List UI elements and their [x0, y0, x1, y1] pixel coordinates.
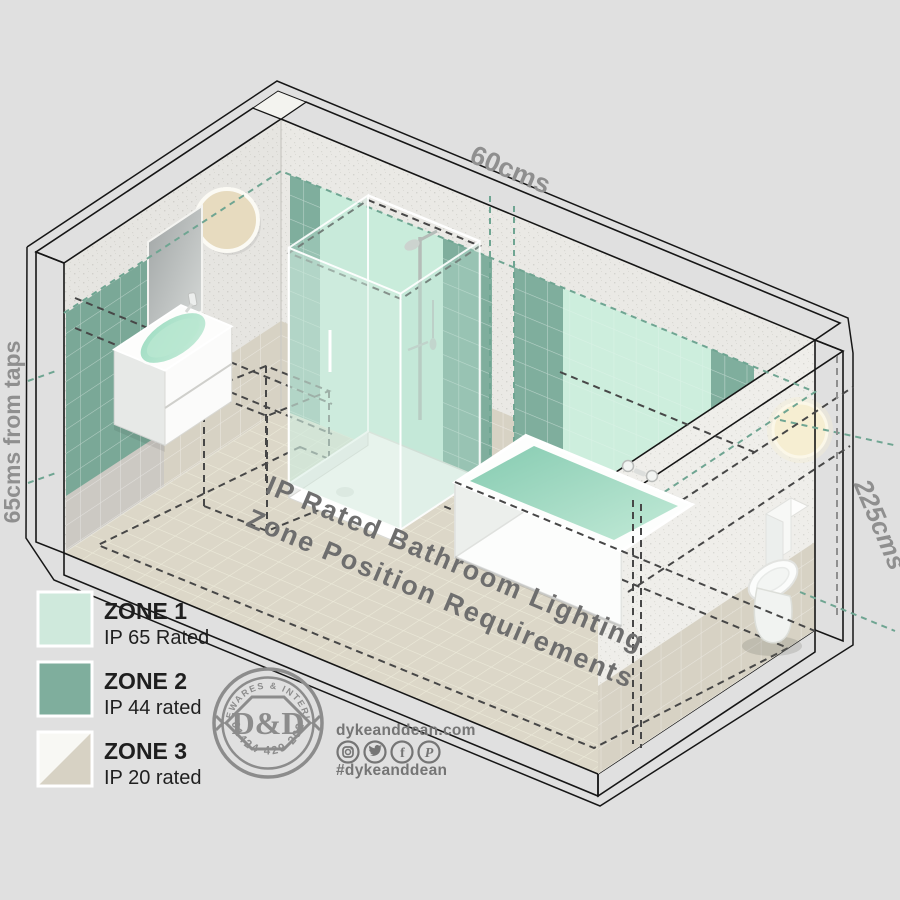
- measure-65cms: 65cms from taps: [0, 341, 25, 524]
- legend-item-zone1: ZONE 1 IP 65 Rated: [38, 592, 209, 649]
- legend-item-zone3: ZONE 3 IP 20 rated: [38, 732, 201, 789]
- svg-text:f: f: [400, 746, 405, 761]
- zone1-label: ZONE 1: [104, 598, 187, 624]
- zone1-swatch: [38, 592, 92, 646]
- zone1-rating: IP 65 Rated: [104, 627, 209, 649]
- zone2-swatch: [38, 662, 92, 716]
- zone2-rating: IP 44 rated: [104, 697, 201, 719]
- legend: ZONE 1 IP 65 Rated ZONE 2 IP 44 rated ZO…: [38, 592, 209, 789]
- stamp-monogram: D&D: [232, 705, 305, 741]
- zone3-label: ZONE 3: [104, 738, 187, 764]
- legend-item-zone2: ZONE 2 IP 44 rated: [38, 662, 201, 719]
- zone3-rating: IP 20 rated: [104, 767, 201, 789]
- toilet-pedestal: [754, 588, 792, 643]
- wall-light: [773, 403, 827, 457]
- zone2-label: ZONE 2: [104, 668, 187, 694]
- hashtag-text: #dykeanddean: [336, 762, 447, 779]
- bathroom-zones-infographic: IP Rated Bathroom Lighting Zone Position…: [0, 0, 900, 900]
- svg-text:P: P: [425, 746, 434, 761]
- website-text: dykeanddean.com: [336, 722, 476, 739]
